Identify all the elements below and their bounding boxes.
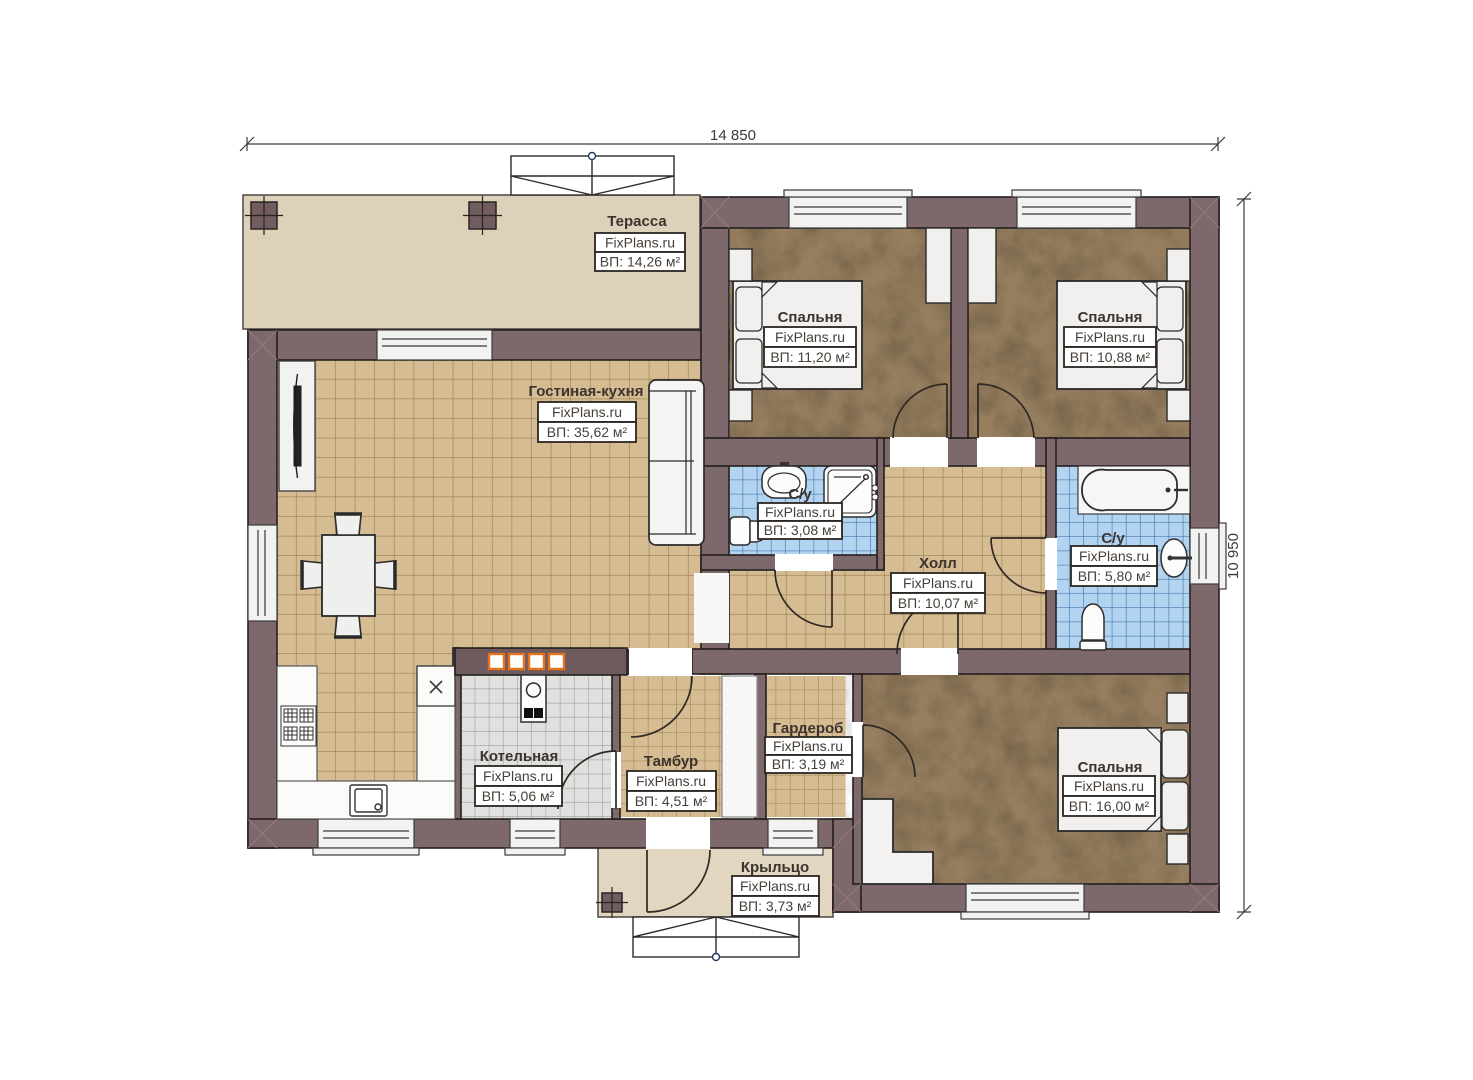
svg-text:Крыльцо: Крыльцо <box>741 859 809 876</box>
svg-text:FixPlans.ru: FixPlans.ru <box>1075 329 1145 345</box>
svg-text:FixPlans.ru: FixPlans.ru <box>605 235 675 251</box>
svg-text:Гостиная-кухня: Гостиная-кухня <box>529 383 644 400</box>
svg-text:FixPlans.ru: FixPlans.ru <box>773 738 843 754</box>
svg-text:С/у: С/у <box>1101 530 1125 547</box>
svg-text:14 850: 14 850 <box>710 127 756 144</box>
svg-text:FixPlans.ru: FixPlans.ru <box>636 773 706 789</box>
svg-text:FixPlans.ru: FixPlans.ru <box>903 575 973 591</box>
svg-text:ВП: 3,08 м²: ВП: 3,08 м² <box>764 522 837 538</box>
svg-text:Спальня: Спальня <box>1078 759 1143 776</box>
svg-text:ВП: 10,88 м²: ВП: 10,88 м² <box>1070 349 1151 365</box>
svg-text:Терасса: Терасса <box>607 213 667 230</box>
svg-text:FixPlans.ru: FixPlans.ru <box>775 329 845 345</box>
svg-text:FixPlans.ru: FixPlans.ru <box>552 404 622 420</box>
svg-text:Котельная: Котельная <box>480 748 559 765</box>
svg-text:FixPlans.ru: FixPlans.ru <box>1079 548 1149 564</box>
svg-text:ВП: 5,06 м²: ВП: 5,06 м² <box>482 788 555 804</box>
svg-text:ВП: 16,00 м²: ВП: 16,00 м² <box>1069 798 1150 814</box>
svg-text:ВП: 14,26 м²: ВП: 14,26 м² <box>600 254 681 270</box>
svg-text:Гардероб: Гардероб <box>773 720 844 737</box>
svg-text:ВП: 4,51 м²: ВП: 4,51 м² <box>635 793 708 809</box>
svg-text:ВП: 10,07 м²: ВП: 10,07 м² <box>898 595 979 611</box>
svg-text:С/у: С/у <box>788 486 812 503</box>
svg-text:Спальня: Спальня <box>778 309 843 326</box>
svg-text:FixPlans.ru: FixPlans.ru <box>740 878 810 894</box>
svg-text:10 950: 10 950 <box>1225 533 1242 579</box>
svg-text:Спальня: Спальня <box>1078 309 1143 326</box>
svg-text:ВП: 3,73 м²: ВП: 3,73 м² <box>739 898 812 914</box>
svg-text:ВП: 35,62 м²: ВП: 35,62 м² <box>547 424 628 440</box>
svg-text:Холл: Холл <box>919 555 957 572</box>
svg-text:Тамбур: Тамбур <box>644 753 698 770</box>
svg-text:ВП: 11,20 м²: ВП: 11,20 м² <box>770 349 850 365</box>
svg-text:FixPlans.ru: FixPlans.ru <box>765 504 835 520</box>
svg-text:ВП: 3,19 м²: ВП: 3,19 м² <box>772 756 845 772</box>
svg-text:FixPlans.ru: FixPlans.ru <box>483 768 553 784</box>
svg-text:FixPlans.ru: FixPlans.ru <box>1074 778 1144 794</box>
svg-text:ВП: 5,80 м²: ВП: 5,80 м² <box>1078 568 1151 584</box>
